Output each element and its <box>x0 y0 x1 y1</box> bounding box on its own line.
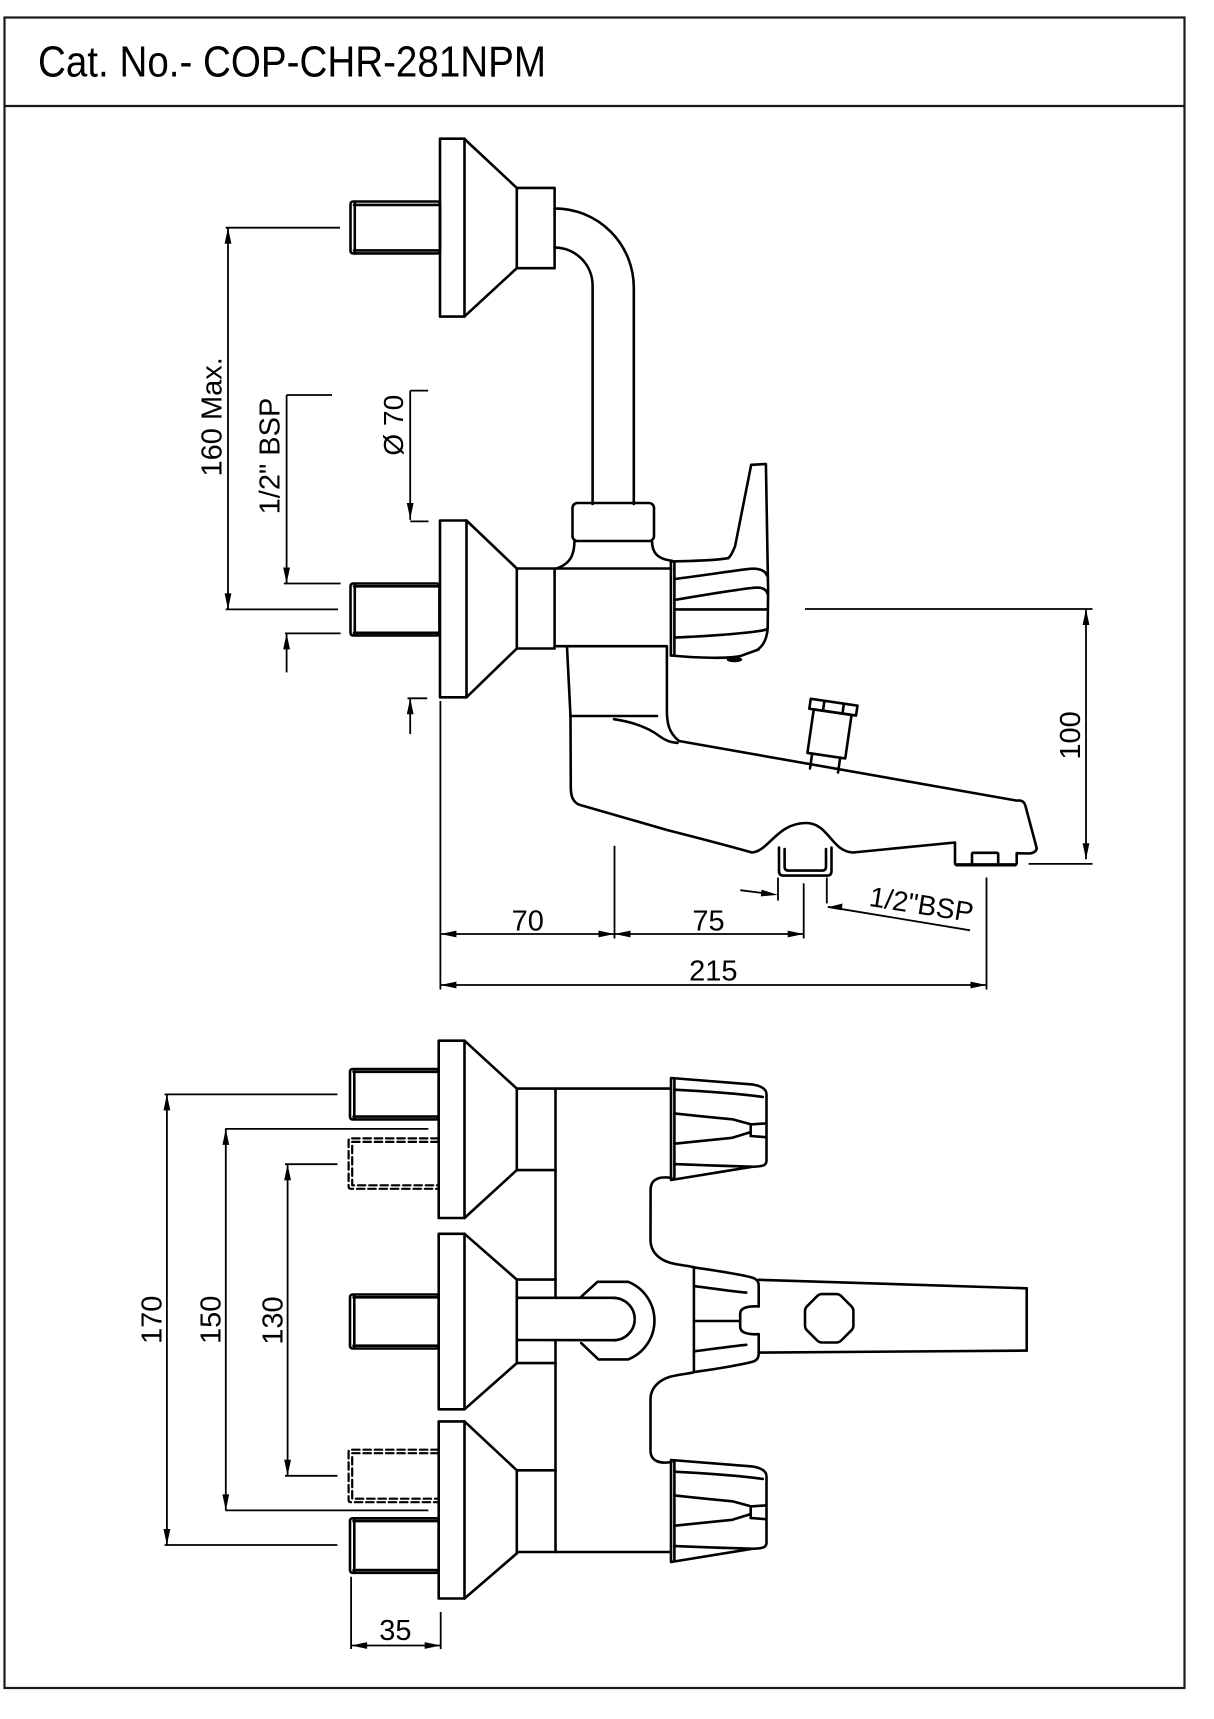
svg-text:Ø 70: Ø 70 <box>378 395 409 456</box>
svg-text:130: 130 <box>258 1296 290 1344</box>
svg-text:160 Max.: 160 Max. <box>197 357 229 476</box>
svg-text:150: 150 <box>196 1296 228 1344</box>
svg-text:170: 170 <box>136 1296 168 1344</box>
svg-text:75: 75 <box>692 906 724 938</box>
svg-text:100: 100 <box>1055 711 1087 759</box>
svg-text:1/2" BSP: 1/2" BSP <box>254 398 286 515</box>
svg-text:Cat. No.- COP-CHR-281NPM: Cat. No.- COP-CHR-281NPM <box>38 38 546 87</box>
svg-text:35: 35 <box>379 1615 411 1647</box>
svg-text:215: 215 <box>689 956 737 988</box>
svg-text:70: 70 <box>512 906 544 938</box>
